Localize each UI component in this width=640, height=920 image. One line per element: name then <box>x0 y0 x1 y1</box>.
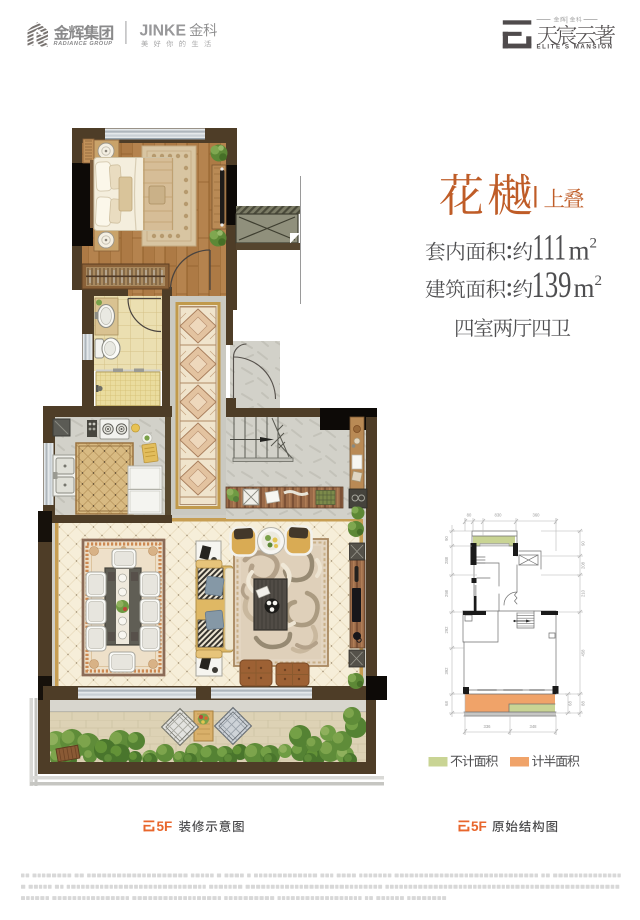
svg-text:2: 2 <box>595 273 603 289</box>
svg-text:392: 392 <box>444 667 449 675</box>
svg-text:288: 288 <box>444 556 449 564</box>
svg-text:88: 88 <box>581 701 586 706</box>
svg-text:ELITE’S MANSION: ELITE’S MANSION <box>537 43 613 50</box>
svg-text:JINKE: JINKE <box>140 23 187 40</box>
svg-text:210: 210 <box>581 589 586 597</box>
svg-text:80: 80 <box>467 513 472 518</box>
svg-text:68: 68 <box>444 701 449 706</box>
svg-text:m: m <box>574 273 595 303</box>
svg-text:2: 2 <box>590 236 598 252</box>
svg-text:90: 90 <box>444 536 449 541</box>
svg-text:139: 139 <box>532 265 572 306</box>
svg-text:292: 292 <box>444 626 449 634</box>
svg-text:90: 90 <box>581 541 586 546</box>
svg-text:RADIANCE GROUP: RADIANCE GROUP <box>54 41 113 47</box>
svg-text:111: 111 <box>533 227 567 268</box>
svg-text:360: 360 <box>533 513 541 518</box>
svg-text:336: 336 <box>484 724 492 729</box>
svg-text:830: 830 <box>495 513 503 518</box>
svg-text:68: 68 <box>568 701 573 706</box>
svg-text:5F: 5F <box>471 819 487 834</box>
svg-text:298: 298 <box>444 589 449 597</box>
svg-text:348: 348 <box>530 724 538 729</box>
svg-text:458: 458 <box>581 649 586 657</box>
svg-text:5F: 5F <box>157 819 173 834</box>
svg-text:m: m <box>569 235 590 265</box>
svg-text:208: 208 <box>581 561 586 569</box>
